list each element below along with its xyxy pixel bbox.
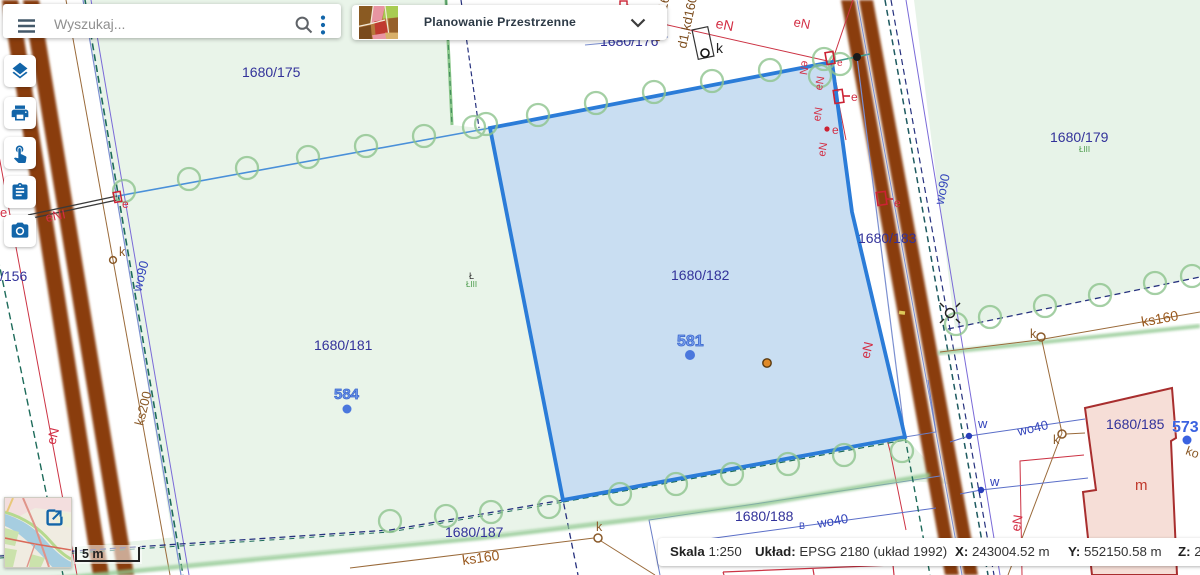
svg-text:k: k	[716, 40, 724, 56]
svg-text:1680/182: 1680/182	[671, 267, 730, 283]
svg-text:k: k	[119, 245, 126, 259]
svg-text:581: 581	[677, 333, 704, 350]
svg-text:m: m	[1135, 477, 1148, 494]
svg-text:1680/175: 1680/175	[242, 64, 301, 80]
svg-text:e: e	[894, 196, 901, 210]
svg-text:w: w	[977, 416, 988, 431]
svg-text:eN: eN	[811, 106, 825, 122]
svg-text:k: k	[596, 520, 603, 534]
svg-text:w: w	[989, 474, 1000, 489]
svg-text:e: e	[837, 58, 843, 69]
svg-text:1680/188: 1680/188	[735, 508, 794, 524]
svg-text:eN: eN	[1008, 513, 1026, 532]
svg-text:1680/183: 1680/183	[858, 230, 917, 246]
svg-text:5 m: 5 m	[82, 547, 104, 561]
svg-text:/156: /156	[0, 268, 27, 284]
svg-text:eN: eN	[813, 75, 827, 91]
svg-text:eN: eN	[792, 14, 811, 32]
svg-text:k: k	[1053, 433, 1060, 447]
svg-text:573: 573	[1172, 419, 1199, 436]
svg-text:eN: eN	[816, 141, 830, 157]
svg-text:eN: eN	[797, 60, 811, 76]
svg-text:e: e	[851, 90, 858, 104]
svg-text:ŁIII: ŁIII	[1079, 145, 1090, 154]
svg-text:1680/187: 1680/187	[445, 524, 504, 540]
svg-text:k: k	[1030, 327, 1037, 341]
svg-text:1680/181: 1680/181	[314, 337, 373, 353]
svg-text:ŁIII: ŁIII	[466, 280, 477, 289]
svg-text:1680/179: 1680/179	[1050, 129, 1109, 145]
svg-text:1680/185: 1680/185	[1106, 416, 1165, 432]
svg-text:B: B	[799, 521, 805, 531]
svg-text:584: 584	[334, 386, 360, 403]
svg-text:e: e	[832, 123, 839, 137]
svg-text:e: e	[122, 197, 129, 211]
svg-text:eN: eN	[714, 15, 735, 34]
